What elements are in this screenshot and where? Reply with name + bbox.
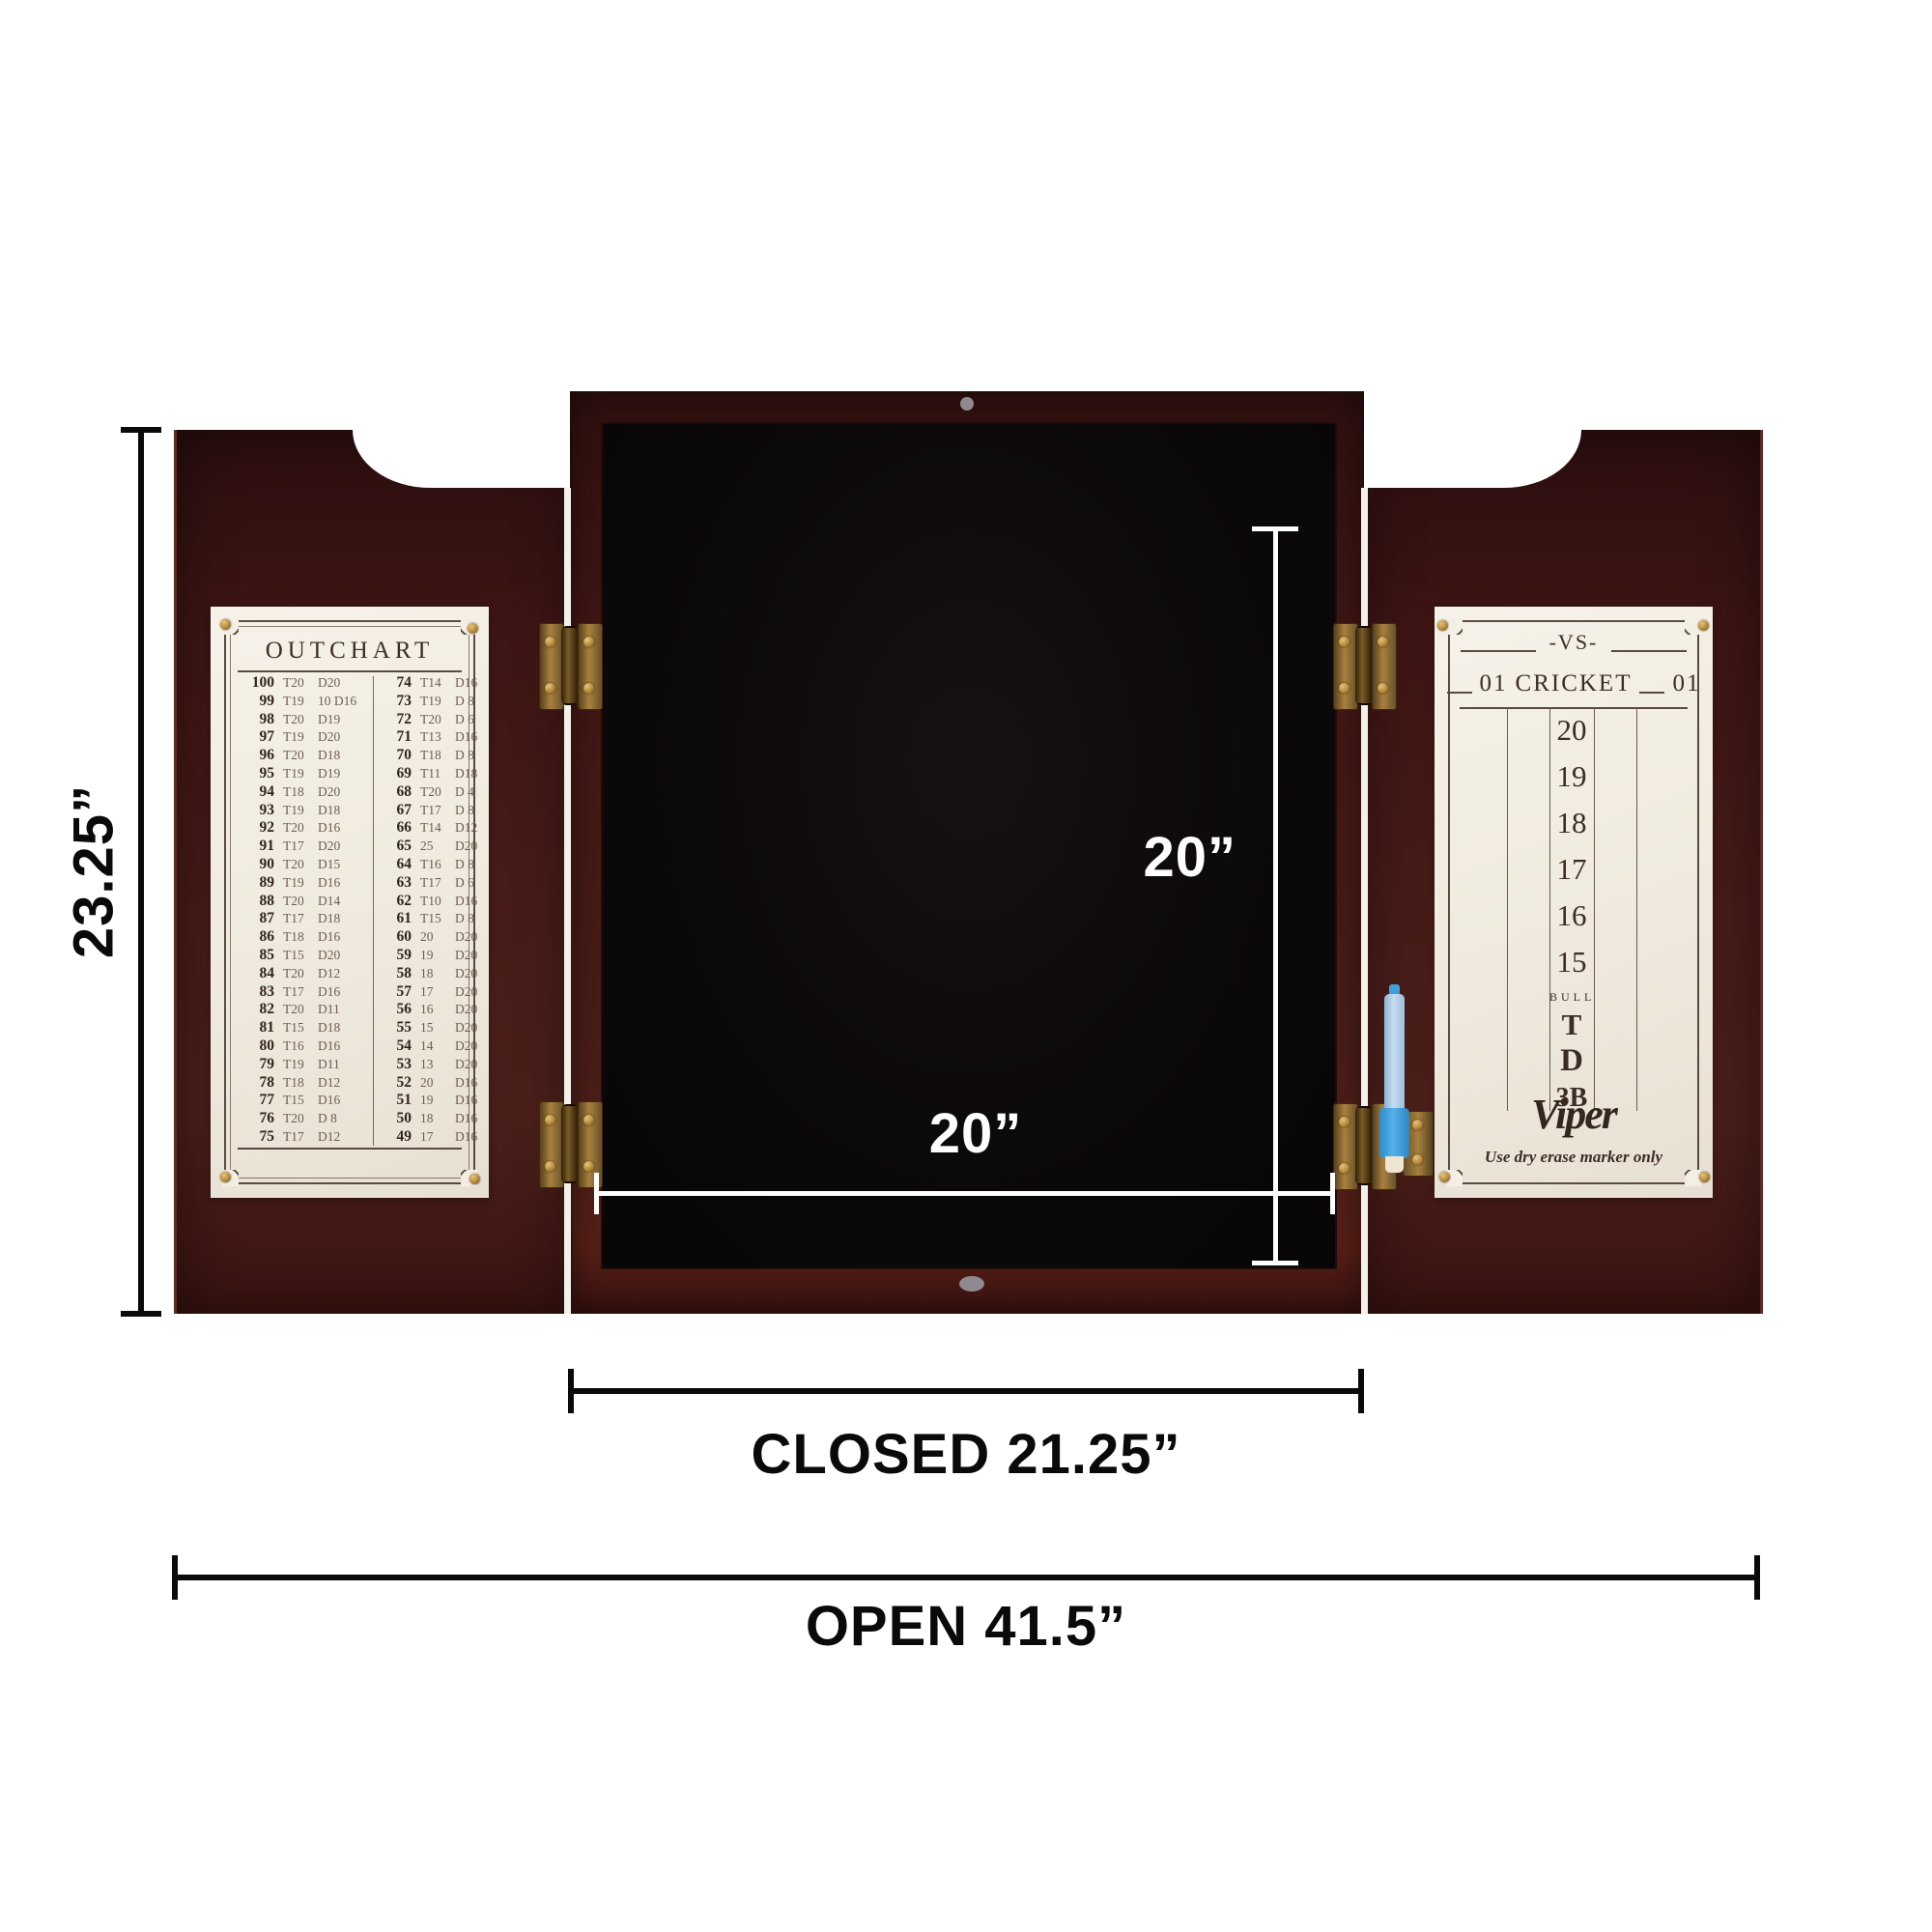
outchart-cell: T19: [283, 693, 316, 711]
height-dim-cap-top: [121, 427, 161, 433]
outchart-cell: 66: [381, 819, 412, 838]
outchart-cell: T19: [283, 802, 316, 820]
outchart-cell: D20: [318, 783, 366, 802]
outchart-cell: 67: [381, 802, 412, 820]
outchart-cell: T20: [283, 819, 316, 838]
outchart-cell: 90: [243, 856, 274, 874]
outchart-cell: 73: [381, 693, 412, 711]
outchart-cell: 60: [381, 928, 412, 947]
outchart-cell: T19: [283, 728, 316, 747]
outchart-row: 86T18D16: [243, 928, 367, 947]
outchart-cell: 55: [381, 1019, 412, 1037]
outchart-cell: 18: [420, 1110, 453, 1128]
outchart-cell: T19: [420, 693, 453, 711]
outchart-row: 5313D20: [381, 1056, 504, 1074]
height-dim-cap-bottom: [121, 1311, 161, 1317]
outchart-cell: D12: [318, 1074, 366, 1093]
hinge-left-top: [539, 623, 601, 708]
outchart-cell: D 8: [455, 802, 503, 820]
outchart-cell: 14: [420, 1037, 453, 1056]
outchart-cell: D16: [318, 1092, 366, 1110]
outchart-cell: T20: [283, 1110, 316, 1128]
marker-eraser-tip: [1385, 1156, 1404, 1173]
cricket-number-column: 201918171615BULLTD3B: [1549, 707, 1594, 1117]
outchart-cell: T17: [283, 910, 316, 928]
outchart-cell: T20: [283, 856, 316, 874]
outchart-cell: T20: [283, 893, 316, 911]
height-dim-line: [138, 430, 144, 1314]
outchart-cell: D12: [318, 965, 366, 983]
outchart-row: 83T17D16: [243, 983, 367, 1002]
score-grid-line: [1507, 707, 1508, 1111]
cricket-number: 19: [1549, 753, 1594, 800]
outchart-row: 92T20D16: [243, 819, 367, 838]
outchart-cell: D18: [318, 747, 366, 765]
outchart-row: 5018D16: [381, 1110, 504, 1128]
outchart-cell: T11: [420, 765, 453, 783]
marker-cap: [1379, 1108, 1409, 1158]
outchart-bottom-rule: [238, 1148, 462, 1150]
outchart-cell: D20: [455, 983, 503, 1002]
dry-erase-note: Use dry erase marker only: [1435, 1148, 1713, 1167]
outchart-cell: 84: [243, 965, 274, 983]
outchart-cell: T14: [420, 819, 453, 838]
outchart-title-rule: [238, 670, 462, 672]
outchart-row: 72T20D 6: [381, 711, 504, 729]
outchart-cell: D20: [318, 674, 366, 693]
outchart-cell: D11: [318, 1001, 366, 1019]
outchart-cell: D 4: [455, 783, 503, 802]
outchart-cell: D15: [318, 856, 366, 874]
outchart-cell: 61: [381, 910, 412, 928]
card-screw: [1437, 620, 1448, 631]
outchart-row: 93T19D18: [243, 802, 367, 820]
outchart-cell: D20: [455, 1056, 503, 1074]
outchart-row: 90T20D15: [243, 856, 367, 874]
outchart-cell: 51: [381, 1092, 412, 1110]
outchart-cell: D 6: [455, 874, 503, 893]
outchart-cell: T20: [283, 747, 316, 765]
outchart-cell: 19: [420, 1092, 453, 1110]
outchart-row: 66T14D12: [381, 819, 504, 838]
cabinet-center-box: [570, 391, 1364, 1314]
outchart-cell: 52: [381, 1074, 412, 1093]
cricket-header: 01 CRICKET 01: [1435, 670, 1713, 697]
outchart-cell: T18: [283, 1074, 316, 1093]
outchart-cell: D20: [455, 1019, 503, 1037]
outchart-row: 97T19D20: [243, 728, 367, 747]
outchart-cell: T10: [420, 893, 453, 911]
outchart-row: 6525D20: [381, 838, 504, 856]
outchart-cell: T15: [283, 1092, 316, 1110]
outchart-row: 6020D20: [381, 928, 504, 947]
outchart-left-column: 100T20D2099T1910 D1698T20D1997T19D2096T2…: [243, 674, 367, 1147]
outchart-cell: T13: [420, 728, 453, 747]
outchart-cell: 58: [381, 965, 412, 983]
open-width-dim-line: [172, 1575, 1760, 1580]
outchart-cell: D16: [318, 1037, 366, 1056]
cricket-01-left: 01: [1480, 670, 1508, 697]
cricket-number: 18: [1549, 800, 1594, 846]
cricket-number: 17: [1549, 846, 1594, 893]
outchart-row: 63T17D 6: [381, 874, 504, 893]
outchart-row: 62T10D16: [381, 893, 504, 911]
outchart-row: 95T19D19: [243, 765, 367, 783]
outchart-cell: 75: [243, 1128, 274, 1147]
inner-height-dim-label: 20”: [1005, 825, 1236, 890]
outchart-row: 76T20D 8: [243, 1110, 367, 1128]
outchart-cell: 53: [381, 1056, 412, 1074]
outchart-cell: T19: [283, 1056, 316, 1074]
outchart-cell: 80: [243, 1037, 274, 1056]
outchart-cell: 76: [243, 1110, 274, 1128]
outchart-cell: D16: [318, 983, 366, 1002]
inner-width-dim-label: 20”: [869, 1101, 1082, 1166]
outchart-cell: 20: [420, 1074, 453, 1093]
outchart-cell: 92: [243, 819, 274, 838]
outchart-cell: 98: [243, 711, 274, 729]
vs-row: -VS-: [1435, 630, 1713, 655]
outchart-cell: 10 D16: [318, 693, 366, 711]
cricket-number: 15: [1549, 939, 1594, 985]
cricket-number: 20: [1549, 707, 1594, 753]
outchart-row: 81T15D18: [243, 1019, 367, 1037]
outchart-row: 5119D16: [381, 1092, 504, 1110]
outchart-cell: 50: [381, 1110, 412, 1128]
outchart-cell: T16: [420, 856, 453, 874]
outchart-cell: D20: [318, 947, 366, 965]
outchart-cell: 69: [381, 765, 412, 783]
right-door-gap: [1361, 488, 1368, 1314]
outchart-cell: 49: [381, 1128, 412, 1147]
outchart-row: 68T20D 4: [381, 783, 504, 802]
outchart-row: 78T18D12: [243, 1074, 367, 1093]
outchart-cell: 74: [381, 674, 412, 693]
outchart-row: 85T15D20: [243, 947, 367, 965]
outchart-cell: D16: [455, 674, 503, 693]
cricket-title: CRICKET: [1516, 670, 1633, 697]
open-width-dim-cap-left: [172, 1555, 178, 1600]
outchart-cell: T17: [283, 838, 316, 856]
inner-height-dim-cap-top: [1252, 526, 1298, 531]
card-screw: [220, 619, 231, 630]
outchart-cell: 81: [243, 1019, 274, 1037]
right-door-notch-strip: [1364, 430, 1505, 488]
outchart-cell: D 8: [455, 910, 503, 928]
outchart-cell: T14: [420, 674, 453, 693]
outchart-cell: D 8: [318, 1110, 366, 1128]
outchart-cell: 19: [420, 947, 453, 965]
outchart-row: 80T16D16: [243, 1037, 367, 1056]
outchart-row: 82T20D11: [243, 1001, 367, 1019]
outchart-row: 77T15D16: [243, 1092, 367, 1110]
double-label: D: [1549, 1041, 1594, 1080]
outchart-cell: D18: [318, 910, 366, 928]
outchart-row: 5818D20: [381, 965, 504, 983]
outchart-cell: T15: [283, 1019, 316, 1037]
outchart-cell: D12: [455, 819, 503, 838]
outchart-cell: D20: [455, 947, 503, 965]
closed-width-dim-cap-left: [568, 1369, 574, 1413]
outchart-cell: D20: [455, 1001, 503, 1019]
outchart-cell: 59: [381, 947, 412, 965]
outchart-cell: 63: [381, 874, 412, 893]
outchart-cell: T20: [283, 711, 316, 729]
viper-logo: Viper: [1435, 1090, 1713, 1139]
hinge-left-bottom: [539, 1101, 601, 1186]
outchart-cell: D20: [455, 928, 503, 947]
outchart-cell: D14: [318, 893, 366, 911]
outchart-cell: 25: [420, 838, 453, 856]
outchart-cell: D20: [455, 965, 503, 983]
outchart-cell: 18: [420, 965, 453, 983]
outchart-row: 91T17D20: [243, 838, 367, 856]
outchart-cell: 20: [420, 928, 453, 947]
outchart-row: 88T20D14: [243, 893, 367, 911]
card-screw: [1698, 620, 1709, 631]
outchart-cell: 71: [381, 728, 412, 747]
closed-width-dim-line: [568, 1388, 1364, 1394]
outchart-cell: D16: [318, 928, 366, 947]
outchart-column-divider: [373, 676, 374, 1146]
outchart-row: 98T20D19: [243, 711, 367, 729]
outchart-cell: D20: [455, 1037, 503, 1056]
outchart-row: 74T14D16: [381, 674, 504, 693]
dry-erase-marker: [1384, 994, 1405, 1110]
card-screw: [469, 1174, 480, 1184]
outchart-cell: D16: [318, 874, 366, 893]
outchart-row: 5515D20: [381, 1019, 504, 1037]
outchart-row: 5220D16: [381, 1074, 504, 1093]
outchart-cell: 94: [243, 783, 274, 802]
open-width-dim-cap-right: [1754, 1555, 1760, 1600]
outchart-cell: D20: [455, 838, 503, 856]
outchart-cell: 77: [243, 1092, 274, 1110]
outchart-cell: T20: [283, 1001, 316, 1019]
outchart-cell: T19: [283, 874, 316, 893]
outchart-cell: T15: [420, 910, 453, 928]
card-screw: [468, 623, 478, 634]
product-dimension-diagram: OUTCHART 100T20D2099T1910 D1698T20D1997T…: [0, 0, 1932, 1932]
outchart-row: 67T17D 8: [381, 802, 504, 820]
outchart-cell: T17: [283, 983, 316, 1002]
outchart-title: OUTCHART: [211, 638, 489, 665]
card-screw: [220, 1172, 231, 1182]
outchart-cell: T18: [283, 783, 316, 802]
cricket-number: 16: [1549, 893, 1594, 939]
outchart-row: 100T20D20: [243, 674, 367, 693]
bull-label: BULL: [1549, 985, 1594, 1009]
outchart-cell: 62: [381, 893, 412, 911]
outchart-cell: D16: [455, 1110, 503, 1128]
hinge-right-top: [1333, 623, 1395, 708]
outchart-cell: D16: [455, 1128, 503, 1147]
outchart-cell: D16: [318, 819, 366, 838]
outchart-cell: 100: [243, 674, 274, 693]
outchart-row: 94T18D20: [243, 783, 367, 802]
outchart-cell: 15: [420, 1019, 453, 1037]
outchart-row: 5717D20: [381, 983, 504, 1002]
outchart-cell: 95: [243, 765, 274, 783]
score-grid-line: [1636, 707, 1637, 1111]
outchart-row: 96T20D18: [243, 747, 367, 765]
outchart-cell: 85: [243, 947, 274, 965]
outchart-cell: 13: [420, 1056, 453, 1074]
outchart-cell: D18: [318, 802, 366, 820]
outchart-right-column: 74T14D1673T19D 872T20D 671T13D1670T18D 8…: [381, 674, 504, 1147]
inner-height-dim-cap-bottom: [1252, 1261, 1298, 1265]
outchart-cell: 91: [243, 838, 274, 856]
outchart-cell: T17: [420, 802, 453, 820]
outchart-cell: D 6: [455, 711, 503, 729]
player-name-blank: [1461, 650, 1536, 652]
outchart-row: 5414D20: [381, 1037, 504, 1056]
outchart-cell: 82: [243, 1001, 274, 1019]
outchart-row: 89T19D16: [243, 874, 367, 893]
outchart-card: OUTCHART 100T20D2099T1910 D1698T20D1997T…: [211, 607, 489, 1198]
outchart-cell: D19: [318, 711, 366, 729]
outchart-cell: T19: [283, 765, 316, 783]
outchart-cell: D20: [318, 728, 366, 747]
outchart-cell: 70: [381, 747, 412, 765]
outchart-cell: 68: [381, 783, 412, 802]
outchart-cell: 97: [243, 728, 274, 747]
outchart-cell: D11: [318, 1056, 366, 1074]
score-grid-line: [1594, 707, 1595, 1111]
outchart-cell: T17: [283, 1128, 316, 1147]
outchart-cell: 88: [243, 893, 274, 911]
outchart-cell: D16: [455, 1092, 503, 1110]
outchart-cell: 65: [381, 838, 412, 856]
outchart-row: 84T20D12: [243, 965, 367, 983]
outchart-cell: 64: [381, 856, 412, 874]
outchart-cell: T20: [420, 783, 453, 802]
outchart-cell: 16: [420, 1001, 453, 1019]
outchart-cell: T20: [420, 711, 453, 729]
outchart-row: 61T15D 8: [381, 910, 504, 928]
hanging-hole: [960, 397, 974, 411]
inner-width-dim-line: [594, 1191, 1335, 1196]
outchart-row: 87T17D18: [243, 910, 367, 928]
outchart-cell: 72: [381, 711, 412, 729]
outchart-row: 5616D20: [381, 1001, 504, 1019]
cricket-scoreboard-card: -VS- 01 CRICKET 01 201918171615BULLTD3B …: [1435, 607, 1713, 1198]
outchart-row: 5919D20: [381, 947, 504, 965]
outchart-row: 69T11D18: [381, 765, 504, 783]
outchart-row: 99T1910 D16: [243, 693, 367, 711]
outchart-cell: 17: [420, 983, 453, 1002]
left-door-notch-strip: [429, 430, 570, 488]
outchart-cell: D18: [455, 765, 503, 783]
card-screw: [1439, 1172, 1450, 1182]
outchart-row: 79T19D11: [243, 1056, 367, 1074]
outchart-cell: 54: [381, 1037, 412, 1056]
cricket-01-right: 01: [1672, 670, 1700, 697]
outchart-cell: T18: [420, 747, 453, 765]
outchart-cell: D12: [318, 1128, 366, 1147]
card-screw: [1699, 1172, 1710, 1182]
closed-width-dim-label: CLOSED 21.25”: [676, 1422, 1256, 1487]
outchart-cell: 78: [243, 1074, 274, 1093]
outchart-cell: D16: [455, 1074, 503, 1093]
outchart-cell: 93: [243, 802, 274, 820]
score-blank: [1447, 692, 1472, 694]
open-width-dim-label: OPEN 41.5”: [676, 1594, 1256, 1659]
outchart-cell: T16: [283, 1037, 316, 1056]
bottom-catch: [959, 1276, 984, 1292]
outchart-cell: D18: [318, 1019, 366, 1037]
score-blank: [1639, 692, 1664, 694]
outchart-cell: 56: [381, 1001, 412, 1019]
inner-width-dim-cap-left: [594, 1173, 599, 1214]
inner-height-dim-line: [1273, 526, 1278, 1265]
outchart-cell: T20: [283, 965, 316, 983]
outchart-cell: D16: [455, 893, 503, 911]
vs-label: -VS-: [1549, 630, 1599, 655]
outchart-row: 64T16D 8: [381, 856, 504, 874]
outchart-row: 4917D16: [381, 1128, 504, 1147]
outchart-cell: 89: [243, 874, 274, 893]
outchart-cell: T15: [283, 947, 316, 965]
outchart-cell: 79: [243, 1056, 274, 1074]
outchart-cell: D19: [318, 765, 366, 783]
outchart-cell: 96: [243, 747, 274, 765]
outchart-cell: T20: [283, 674, 316, 693]
outchart-cell: T18: [283, 928, 316, 947]
outchart-cell: 57: [381, 983, 412, 1002]
outchart-cell: D16: [455, 728, 503, 747]
outchart-row: 71T13D16: [381, 728, 504, 747]
outchart-cell: 83: [243, 983, 274, 1002]
outchart-row: 75T17D12: [243, 1128, 367, 1147]
player-name-blank: [1611, 650, 1687, 652]
outchart-cell: D 8: [455, 693, 503, 711]
left-door-gap: [564, 488, 571, 1314]
outchart-cell: T17: [420, 874, 453, 893]
outchart-cell: 99: [243, 693, 274, 711]
outchart-cell: D 8: [455, 747, 503, 765]
triple-label: T: [1549, 1009, 1594, 1041]
outchart-cell: 87: [243, 910, 274, 928]
closed-width-dim-cap-right: [1358, 1369, 1364, 1413]
outchart-row: 73T19D 8: [381, 693, 504, 711]
outchart-cell: 86: [243, 928, 274, 947]
inner-width-dim-cap-right: [1330, 1173, 1335, 1214]
outchart-cell: 17: [420, 1128, 453, 1147]
outchart-cell: D 8: [455, 856, 503, 874]
outchart-cell: D20: [318, 838, 366, 856]
outchart-row: 70T18D 8: [381, 747, 504, 765]
height-dim-label: 23.25”: [62, 784, 127, 958]
